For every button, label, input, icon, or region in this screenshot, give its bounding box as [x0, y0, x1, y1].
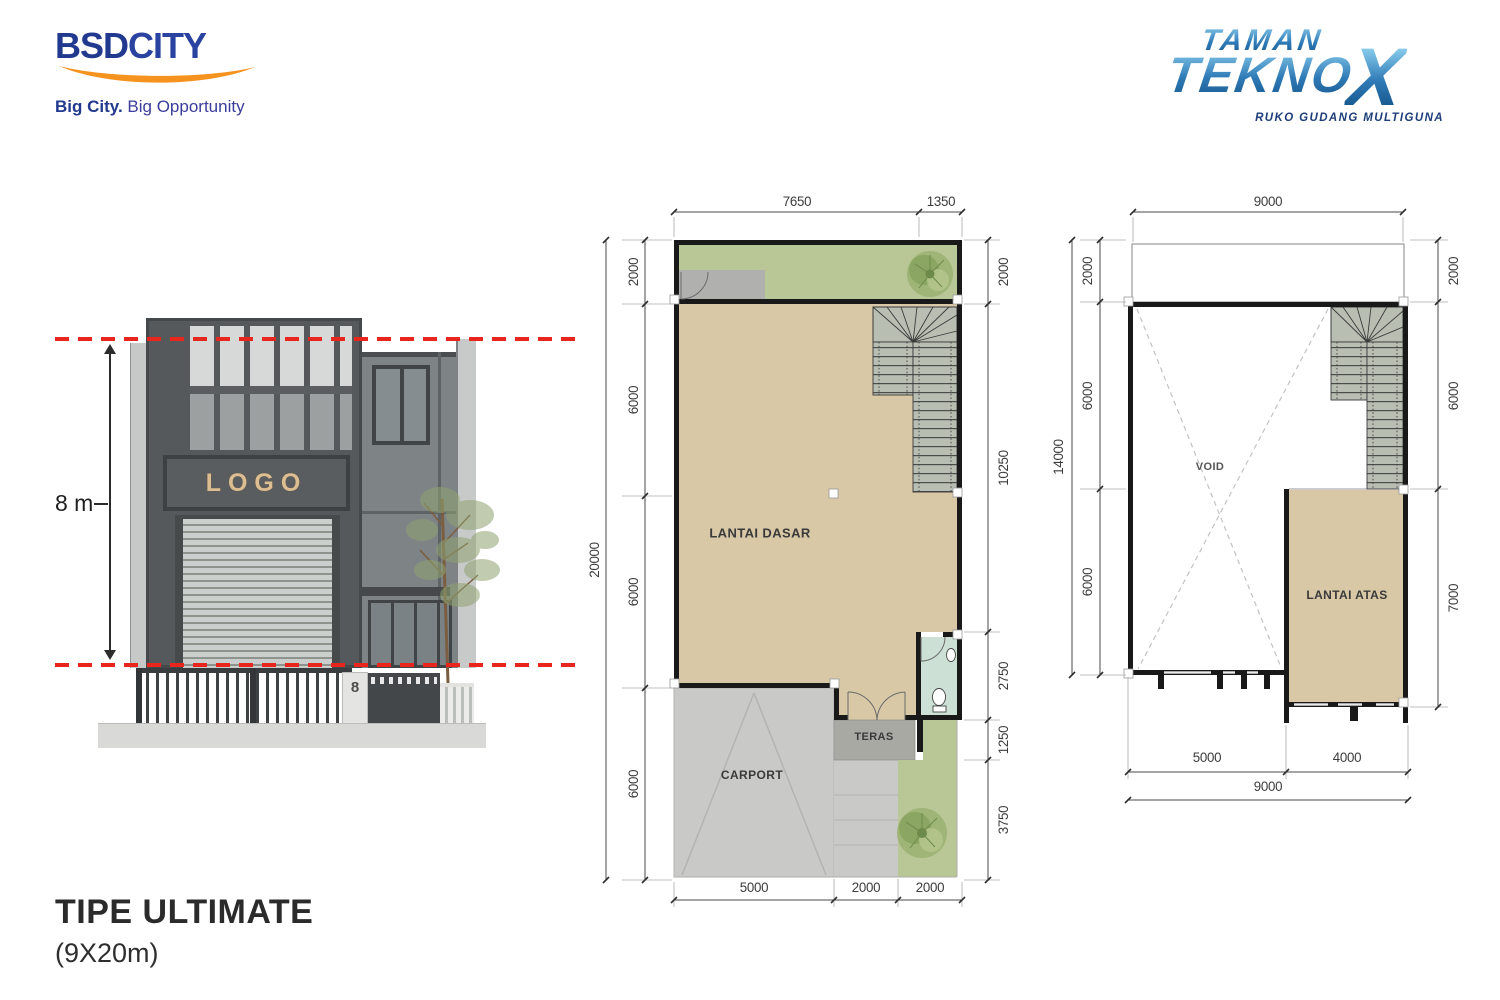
- dim-upper-left-1: 2000: [1079, 257, 1095, 285]
- tekno-line2: TEKNO: [1163, 46, 1356, 104]
- dim-upper-right-2: 6000: [1445, 382, 1461, 410]
- roller-shutter-door: [175, 515, 340, 668]
- ground-slab: [98, 723, 486, 748]
- dim-ground-right-3: 2750: [995, 662, 1011, 690]
- bsd-swoosh-icon: [55, 64, 260, 88]
- tekno-x: X: [1344, 46, 1408, 110]
- ground-floor-plan: [560, 185, 1060, 925]
- tekno-line2-wrap: TEKNO X: [1116, 46, 1455, 110]
- room-label-void: VOID: [1196, 461, 1225, 473]
- dim-ground-left-total: 20000: [586, 542, 602, 578]
- dim-ground-bottom-3: 2000: [916, 879, 944, 895]
- dim-upper-bottom-1: 5000: [1193, 749, 1221, 765]
- glass-lower-shade: [190, 394, 352, 450]
- dim-ground-left-2: 6000: [625, 386, 641, 414]
- height-label-tick: [94, 503, 108, 505]
- front-roof-strip: [1132, 244, 1404, 302]
- dim-ground-left-3: 6000: [625, 578, 641, 606]
- bsd-logo-bold: BSD: [55, 25, 128, 66]
- stairs: [1331, 307, 1403, 489]
- page-subtitle: (9X20m): [55, 938, 313, 969]
- main-floor-lower-left: [679, 632, 834, 683]
- dim-ground-right-2: 10250: [995, 450, 1011, 486]
- bsd-logo-light: CITY: [128, 25, 206, 66]
- tree-icon: [907, 251, 953, 297]
- fence-post-mid: [250, 668, 256, 725]
- tekno-tagline: RUKO GUDANG MULTIGUNA: [1120, 112, 1450, 124]
- room-label-lantai-atas: LANTAI ATAS: [1306, 588, 1387, 602]
- glass-divider-band: [190, 386, 352, 394]
- upper-glass-panels: [190, 326, 352, 450]
- height-arrowhead-down-icon: [104, 650, 116, 660]
- dim-ground-left-4: 6000: [625, 770, 641, 798]
- front-fence: [136, 668, 352, 725]
- carport-floor: [674, 688, 834, 877]
- dim-upper-bottom-2: 4000: [1333, 749, 1361, 765]
- toilet-icon: [933, 689, 947, 713]
- dim-ground-right-5: 3750: [995, 806, 1011, 834]
- upper-window: [372, 365, 430, 445]
- signage-board: LOGO: [163, 455, 350, 511]
- side-garden-upper: [923, 720, 957, 760]
- height-reference-line-bottom: [55, 663, 580, 667]
- sink-icon: [947, 649, 956, 662]
- dim-ground-right-1: 2000: [995, 258, 1011, 286]
- dim-ground-left-1: 2000: [625, 258, 641, 286]
- bsd-tagline: Big City. Big Opportunity: [55, 97, 260, 117]
- bsd-logo-text: BSDCITY: [55, 28, 260, 64]
- bsd-tagline-light: Big Opportunity: [123, 97, 245, 116]
- back-service-pad: [679, 270, 765, 299]
- driveway: [834, 760, 898, 877]
- dim-upper-right-3: 7000: [1445, 584, 1461, 612]
- tree-icon: [897, 808, 947, 858]
- dim-upper-left-total: 14000: [1050, 439, 1066, 475]
- dim-upper-top-1: 9000: [1254, 193, 1282, 209]
- side-wall: [130, 343, 147, 668]
- gate-panel: [368, 673, 440, 723]
- fence-post-left: [136, 668, 142, 725]
- dim-ground-bottom-2: 2000: [852, 879, 880, 895]
- dim-ground-bottom-1: 5000: [740, 879, 768, 895]
- building-elevation: LOGO 8: [100, 315, 490, 750]
- dim-upper-bottom-total: 9000: [1254, 778, 1282, 794]
- room-label-lantai-dasar: LANTAI DASAR: [709, 526, 810, 541]
- dim-upper-left-3: 6000: [1079, 568, 1095, 596]
- entry-vestibule: [834, 632, 916, 720]
- dim-ground-top-1: 7650: [783, 193, 811, 209]
- room-label-teras: TERAS: [854, 731, 893, 743]
- dim-ground-top-2: 1350: [927, 193, 955, 209]
- height-arrow: [109, 347, 111, 657]
- type-title-block: TIPE ULTIMATE (9X20m): [55, 893, 313, 969]
- dim-ground-right-4: 1250: [995, 726, 1011, 754]
- height-reference-line-top: [55, 337, 580, 341]
- dim-upper-left-2: 6000: [1079, 382, 1095, 410]
- gate-slits: [371, 677, 437, 684]
- bsd-logo: BSDCITY Big City. Big Opportunity: [55, 28, 260, 117]
- height-label: 8 m: [55, 490, 93, 517]
- room-label-carport: CARPORT: [721, 768, 783, 782]
- window-mullion: [400, 369, 404, 441]
- brochure-page: BSDCITY Big City. Big Opportunity TAMAN …: [0, 0, 1500, 1000]
- tekno-logo: TAMAN TEKNO X RUKO GUDANG MULTIGUNA: [1120, 24, 1450, 124]
- dim-upper-right-1: 2000: [1445, 257, 1461, 285]
- house-number: 8: [351, 679, 359, 696]
- tree-icon: [400, 455, 530, 685]
- bsd-tagline-bold: Big City.: [55, 97, 123, 116]
- upper-floor-plan: [1040, 185, 1480, 850]
- signage-logo-text: LOGO: [206, 469, 308, 498]
- height-arrowhead-up-icon: [104, 344, 116, 354]
- page-title: TIPE ULTIMATE: [55, 893, 313, 932]
